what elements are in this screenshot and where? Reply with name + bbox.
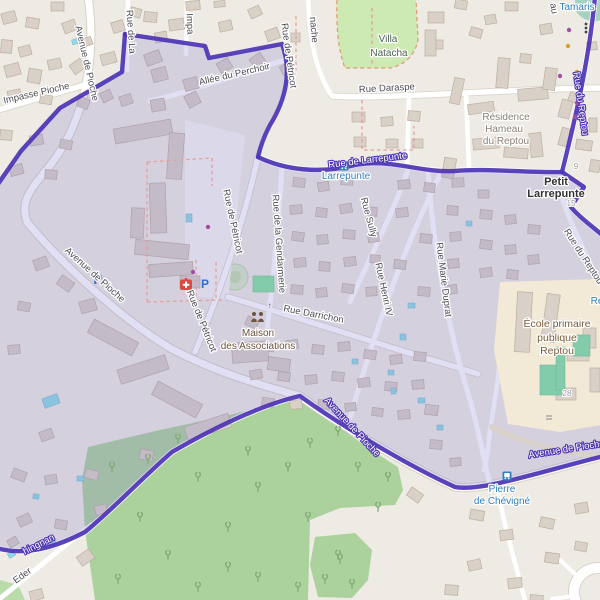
building: [505, 2, 518, 11]
building: [168, 18, 184, 31]
sports-pitch: [253, 276, 274, 292]
building: [469, 509, 485, 521]
building: [352, 112, 365, 122]
street-label-impa: Impa: [183, 13, 195, 35]
building: [484, 14, 496, 25]
street-label-au: au: [547, 2, 560, 14]
poi-dot: [566, 44, 570, 48]
building: [496, 58, 511, 89]
bus-label-larrepunte: Larrepunte: [322, 171, 371, 182]
building: [543, 67, 558, 90]
building: [27, 68, 42, 84]
building: [530, 594, 544, 600]
building: [574, 502, 589, 514]
building: [354, 137, 366, 147]
building: [408, 110, 421, 121]
poi-dot: [558, 74, 562, 78]
building: [574, 541, 587, 552]
building: [0, 129, 12, 140]
place-label-larrepunte: Larrepunte: [527, 188, 584, 200]
building: [425, 30, 436, 56]
res-label-du-reptou: du Reptou: [483, 136, 529, 147]
poi-dot: [573, 115, 577, 119]
building: [575, 139, 592, 151]
building: [0, 40, 12, 54]
poi-label-maison: Maison: [242, 328, 274, 339]
school-label-line3: Reptou: [540, 345, 574, 357]
building: [539, 23, 553, 35]
building: [214, 1, 225, 8]
building: [454, 0, 467, 10]
building: [504, 147, 529, 159]
medical-icon: [180, 278, 192, 290]
building: [25, 17, 40, 29]
bus-stop-icon-pierre-de-chevigne: [503, 472, 512, 481]
building: [589, 159, 600, 173]
building: [428, 12, 444, 23]
res-label-hameau: Hameau: [485, 124, 523, 135]
bus-label-pierre: Pierre: [489, 484, 516, 495]
map-canvas[interactable]: PP Impasse PiocheAvenue de PiocheRue de …: [0, 0, 600, 600]
building: [144, 11, 158, 22]
house-number-15: 15: [567, 199, 576, 208]
building: [529, 132, 543, 157]
building: [520, 54, 532, 64]
building: [544, 552, 559, 564]
school-label-line2: publique: [537, 332, 577, 344]
building: [445, 584, 459, 595]
poi-label-des-associations: des Associations: [221, 341, 296, 352]
school-label-line1: École primaire: [523, 317, 590, 330]
school-building: [590, 368, 600, 392]
bus-label-re: Re: [591, 296, 600, 307]
oneway-arrow: →: [264, 301, 274, 310]
poi-dot: [206, 225, 210, 229]
res-label-residence: Résidence: [482, 112, 530, 123]
building: [499, 529, 513, 541]
street-label-nache: nache: [307, 16, 320, 43]
place-label-petit: Petit: [544, 176, 568, 188]
park-label-natacha: Natacha: [370, 48, 408, 59]
bus-label-de-chevigne: de Chévigné: [474, 496, 531, 507]
poi-dot: [567, 28, 571, 32]
parking-icon-small: P: [201, 277, 209, 291]
building: [51, 2, 64, 11]
poi-dot: [191, 270, 195, 274]
traffic-signal-icon: [585, 23, 588, 34]
park-label-villa: Villa: [379, 34, 398, 45]
bus-label-tamaris: Tamaris: [559, 2, 594, 13]
map-tiles: PP Impasse PiocheAvenue de PiocheRue de …: [0, 0, 600, 600]
house-number-28: 28: [563, 389, 572, 398]
building: [381, 116, 394, 126]
building: [290, 399, 303, 409]
building: [186, 0, 201, 10]
house-number-9: 9: [574, 162, 579, 171]
building: [386, 139, 398, 148]
building: [508, 577, 523, 588]
